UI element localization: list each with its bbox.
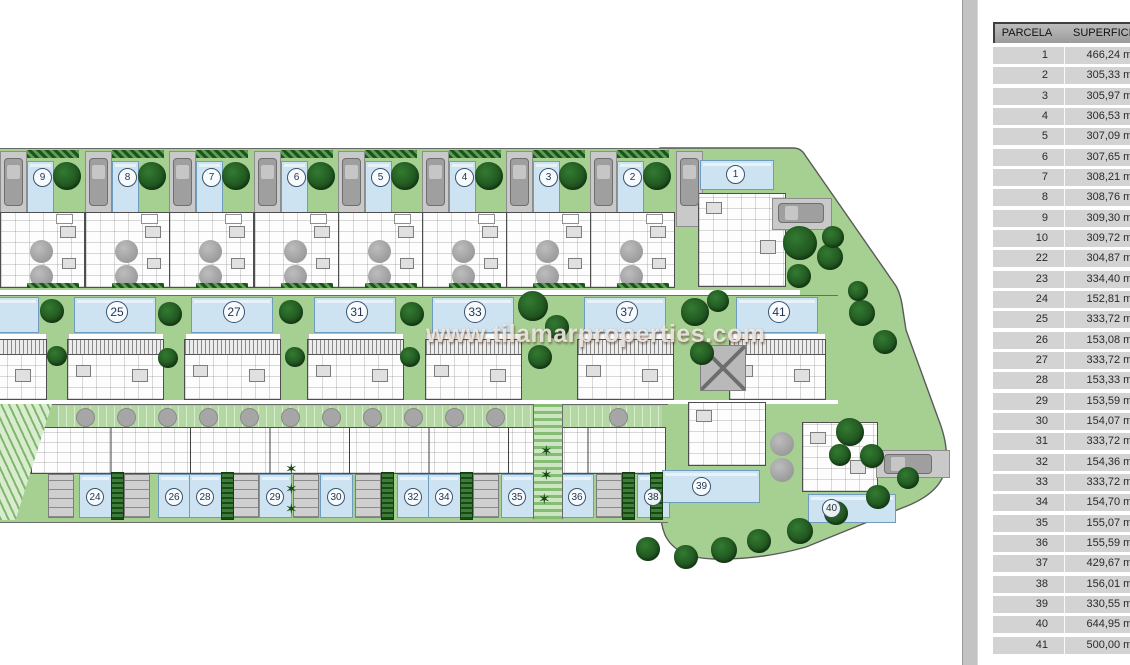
shrub xyxy=(452,240,475,263)
villa-unit: 8 xyxy=(85,148,171,290)
shrub xyxy=(620,240,643,263)
hedge xyxy=(533,150,585,158)
tree xyxy=(307,162,335,190)
pergola-strip xyxy=(58,406,662,427)
furniture xyxy=(147,258,161,269)
shrub xyxy=(770,458,794,482)
plot-number-badge: 24 xyxy=(86,488,104,506)
house xyxy=(30,427,666,474)
plan-image: 9876543212527313337412426282930323435363… xyxy=(0,0,1130,665)
furniture xyxy=(316,258,330,269)
hedge xyxy=(281,150,333,158)
furniture xyxy=(15,369,31,382)
car xyxy=(680,158,699,206)
pergola-tree xyxy=(76,408,95,427)
plot-number-badge: 5 xyxy=(371,168,390,187)
plot-number-badge: 27 xyxy=(223,301,245,323)
car xyxy=(4,158,23,206)
hedge xyxy=(617,283,669,288)
garage-door xyxy=(124,474,150,518)
furniture xyxy=(316,365,331,377)
tree xyxy=(138,162,166,190)
shrub xyxy=(199,240,222,263)
furniture xyxy=(400,258,414,269)
furniture xyxy=(398,226,414,238)
plot-number-badge: 26 xyxy=(165,488,183,506)
pergola-tree xyxy=(322,408,341,427)
furniture xyxy=(586,365,601,377)
furniture xyxy=(650,226,666,238)
tree xyxy=(860,444,884,468)
terrace-hatch xyxy=(308,340,403,355)
villa-unit: 31 xyxy=(302,295,408,402)
pool-table xyxy=(562,214,579,224)
furniture xyxy=(490,369,506,382)
hedge xyxy=(365,283,417,288)
tree xyxy=(783,226,817,260)
car xyxy=(258,158,277,206)
car xyxy=(510,158,529,206)
pergola-tree xyxy=(363,408,382,427)
car xyxy=(778,203,824,223)
pool-table xyxy=(478,214,495,224)
car xyxy=(426,158,445,206)
plot-number-badge: 38 xyxy=(644,488,662,506)
furniture xyxy=(706,202,722,214)
shrub xyxy=(536,240,559,263)
shrub xyxy=(115,240,138,263)
villa-unit: 27 xyxy=(179,295,285,402)
pergola-tree xyxy=(281,408,300,427)
pool-table xyxy=(310,214,327,224)
hedge xyxy=(112,283,164,288)
tree xyxy=(475,162,503,190)
tree xyxy=(400,347,420,367)
hedge xyxy=(196,150,248,158)
furniture xyxy=(145,226,161,238)
hedge xyxy=(617,150,669,158)
tree xyxy=(787,518,813,544)
plot-number-badge: 25 xyxy=(106,301,128,323)
shrub xyxy=(770,432,794,456)
furniture xyxy=(132,369,148,382)
villa-unit: 3 xyxy=(506,148,592,290)
hedge xyxy=(221,472,234,520)
furniture xyxy=(372,369,388,382)
villa-unit: 9 xyxy=(0,148,86,290)
furniture xyxy=(566,226,582,238)
tree xyxy=(866,485,890,509)
pool-table xyxy=(141,214,158,224)
tree xyxy=(674,545,698,569)
pergola-tree xyxy=(445,408,464,427)
plot-number-badge: 8 xyxy=(118,168,137,187)
tree xyxy=(391,162,419,190)
garage-door xyxy=(473,474,499,518)
tree xyxy=(836,418,864,446)
palm-tree: ✶ xyxy=(285,462,301,478)
palm-tree: ✶ xyxy=(285,502,301,518)
furniture xyxy=(652,258,666,269)
plot-number-badge: 40 xyxy=(822,499,841,518)
tree xyxy=(873,330,897,354)
plot-number-badge: 41 xyxy=(768,301,790,323)
furniture xyxy=(482,226,498,238)
plot-number-badge: 36 xyxy=(568,488,586,506)
hedge xyxy=(381,472,394,520)
tree xyxy=(47,346,67,366)
tree xyxy=(829,444,851,466)
villa-unit: 4 xyxy=(422,148,508,290)
villa-unit: 5 xyxy=(338,148,424,290)
pool-table xyxy=(225,214,242,224)
shrub xyxy=(30,240,53,263)
tree xyxy=(158,348,178,368)
plot-number-badge: 35 xyxy=(508,488,526,506)
furniture xyxy=(434,365,449,377)
plot-number-badge: 39 xyxy=(692,477,711,496)
hedge xyxy=(449,283,501,288)
hedge xyxy=(111,472,124,520)
furniture xyxy=(229,226,245,238)
garage-door xyxy=(48,474,74,518)
hedge xyxy=(365,150,417,158)
shrub xyxy=(284,240,307,263)
tree xyxy=(279,300,303,324)
furniture xyxy=(231,258,245,269)
pergola-tree xyxy=(158,408,177,427)
plot-number-badge: 29 xyxy=(266,488,284,506)
tree xyxy=(848,281,868,301)
tree xyxy=(285,347,305,367)
tree xyxy=(643,162,671,190)
plot-number-badge: 3 xyxy=(539,168,558,187)
tree xyxy=(897,467,919,489)
furniture xyxy=(314,226,330,238)
car xyxy=(173,158,192,206)
tree xyxy=(711,537,737,563)
hedge xyxy=(112,150,164,158)
furniture xyxy=(760,240,776,254)
hedge xyxy=(533,283,585,288)
pool-table xyxy=(56,214,73,224)
tree xyxy=(707,290,729,312)
villa-unit: 7 xyxy=(169,148,255,290)
swimming-pool xyxy=(662,470,760,503)
terrace-hatch xyxy=(68,340,163,355)
garage-door xyxy=(596,474,622,518)
tree xyxy=(53,162,81,190)
plot-number-badge: 31 xyxy=(346,301,368,323)
furniture xyxy=(62,258,76,269)
plot-number-badge: 28 xyxy=(196,488,214,506)
tree xyxy=(518,291,548,321)
plot-number-badge: 6 xyxy=(287,168,306,187)
tree xyxy=(559,162,587,190)
car xyxy=(89,158,108,206)
tree xyxy=(817,244,843,270)
villa-unit: 25 xyxy=(62,295,168,402)
furniture xyxy=(696,410,712,422)
villa-unit: 6 xyxy=(254,148,340,290)
furniture xyxy=(794,369,810,382)
furniture xyxy=(484,258,498,269)
pool-table xyxy=(394,214,411,224)
palm-tree: ✶ xyxy=(540,468,556,484)
hedge xyxy=(27,283,79,288)
tree xyxy=(849,300,875,326)
pergola-tree xyxy=(404,408,423,427)
plot-number-badge: 1 xyxy=(726,165,745,184)
furniture xyxy=(810,432,826,444)
garage-door xyxy=(233,474,259,518)
furniture xyxy=(249,369,265,382)
hedge xyxy=(27,150,79,158)
furniture xyxy=(60,226,76,238)
tree xyxy=(787,264,811,288)
plot-number-badge: 2 xyxy=(623,168,642,187)
garage-door xyxy=(355,474,381,518)
tree xyxy=(400,302,424,326)
pool-table xyxy=(646,214,663,224)
pergola-tree xyxy=(240,408,259,427)
hedge xyxy=(281,283,333,288)
tree xyxy=(222,162,250,190)
plot-number-badge: 30 xyxy=(327,488,345,506)
tree xyxy=(158,302,182,326)
hedge xyxy=(449,150,501,158)
pergola-tree xyxy=(609,408,628,427)
pergola-tree xyxy=(117,408,136,427)
terrace-hatch xyxy=(185,340,280,355)
tree xyxy=(40,299,64,323)
plot-number-badge: 4 xyxy=(455,168,474,187)
pergola-tree xyxy=(199,408,218,427)
furniture xyxy=(642,369,658,382)
furniture xyxy=(568,258,582,269)
furniture xyxy=(193,365,208,377)
palm-tree: ✶ xyxy=(285,482,301,498)
hedge xyxy=(460,472,473,520)
tree xyxy=(747,529,771,553)
hedge xyxy=(196,283,248,288)
tree xyxy=(822,226,844,248)
plot-number-badge: 32 xyxy=(404,488,422,506)
palm-tree: ✶ xyxy=(540,444,556,460)
tree xyxy=(636,537,660,561)
car xyxy=(594,158,613,206)
furniture xyxy=(76,365,91,377)
palm-tree: ✶ xyxy=(538,492,554,508)
villa-unit: 2 xyxy=(590,148,676,290)
plot-number-badge: 7 xyxy=(202,168,221,187)
swimming-pool xyxy=(0,297,39,333)
shrub xyxy=(368,240,391,263)
plot-number-badge: 9 xyxy=(33,168,52,187)
plot-number-badge: 34 xyxy=(435,488,453,506)
pergola-tree xyxy=(486,408,505,427)
terrace-hatch xyxy=(0,340,46,355)
car xyxy=(342,158,361,206)
watermark: www.tilamarproperties.com xyxy=(426,320,765,349)
hedge xyxy=(622,472,635,520)
